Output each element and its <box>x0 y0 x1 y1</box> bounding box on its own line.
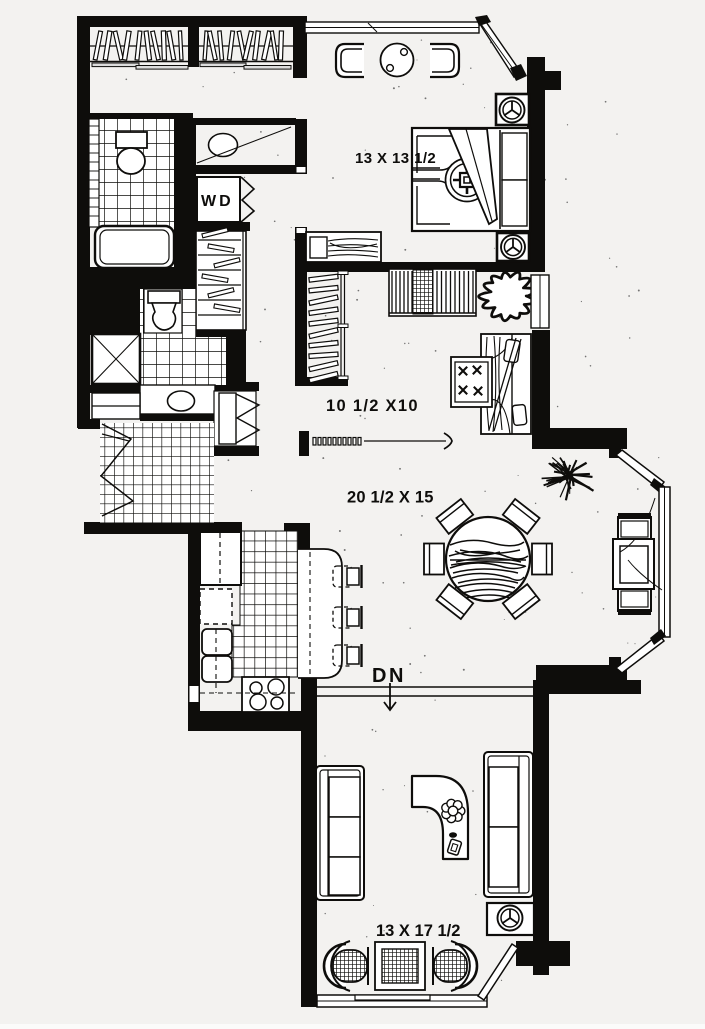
svg-text:13 X 13 1/2: 13 X 13 1/2 <box>355 150 436 167</box>
svg-text:WD: WD <box>201 193 234 210</box>
svg-text:20 1/2 X 15: 20 1/2 X 15 <box>347 489 434 507</box>
svg-text:13 X 17 1/2: 13 X 17 1/2 <box>376 922 460 940</box>
svg-text:DN: DN <box>372 665 406 687</box>
svg-text:10 1/2 X10: 10 1/2 X10 <box>326 397 419 415</box>
